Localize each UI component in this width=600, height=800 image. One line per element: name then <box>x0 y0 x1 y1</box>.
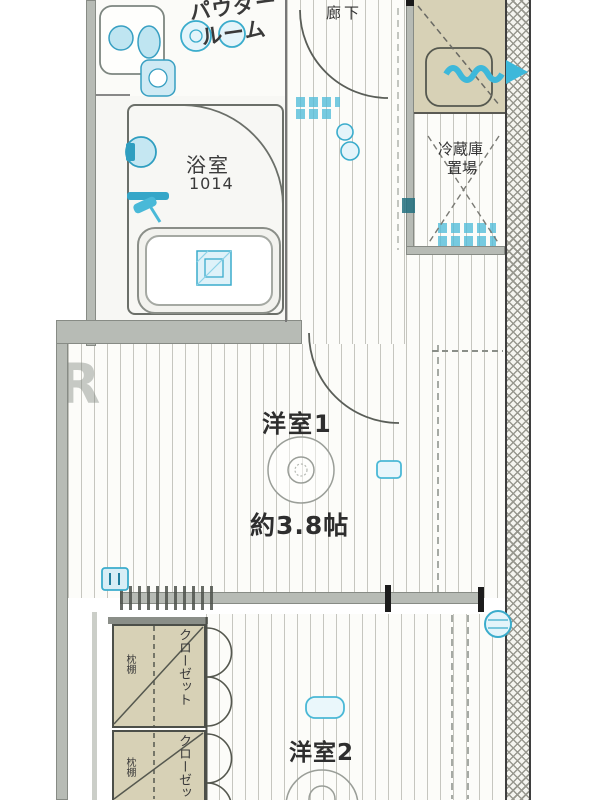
room1-area-label: 約3.8帖 <box>250 506 349 542</box>
toilet-bowl-icon <box>138 26 160 58</box>
closet-1-shelf-label: 枕棚 <box>122 654 137 698</box>
hallway-fixture-icon <box>341 142 359 160</box>
closet-door-arc <box>207 734 232 783</box>
wall-light-icon <box>306 697 344 718</box>
hallway-fixture-icon <box>337 124 353 140</box>
hallway-label: 廊下 <box>326 2 362 23</box>
closet-1-label: クローゼット <box>174 628 193 724</box>
wall-controller-icon <box>377 461 401 478</box>
fridge-label-line2: 置場 <box>447 157 477 178</box>
closet-2-shelf-label: 枕棚 <box>122 757 137 799</box>
powder-room-door-arc <box>300 10 388 98</box>
ceiling-light-inner-icon <box>309 786 335 800</box>
ceiling-light-icon <box>268 437 334 503</box>
ceiling-light-icon <box>286 770 358 800</box>
hand-basin-bowl-icon <box>149 69 167 87</box>
toilet-tank-icon <box>109 26 133 50</box>
fridge-label-line1: 冷蔵庫 <box>438 138 483 159</box>
room2-label: 洋室2 <box>289 733 354 767</box>
switch-icon <box>102 568 128 590</box>
door-stop-icon <box>402 198 415 213</box>
room1-label: 洋室1 <box>262 404 333 439</box>
ac-sleeve-icon <box>485 611 511 637</box>
exhaust-wave-icon <box>446 68 502 80</box>
closet-door-arc <box>207 783 232 800</box>
plan-linework <box>0 0 600 800</box>
floor-plan: R <box>0 0 600 800</box>
bath-faucet-handle-icon <box>126 143 135 161</box>
bathroom-size-label: 1014 <box>189 174 234 193</box>
closet-door-arc <box>207 628 232 677</box>
closet-2-label: クローゼット <box>174 734 193 798</box>
counter-diagonal-dashed <box>418 6 500 106</box>
exhaust-arrow-icon <box>506 60 528 84</box>
closet-door-arc <box>207 677 232 726</box>
shower-hose-icon <box>150 206 160 222</box>
